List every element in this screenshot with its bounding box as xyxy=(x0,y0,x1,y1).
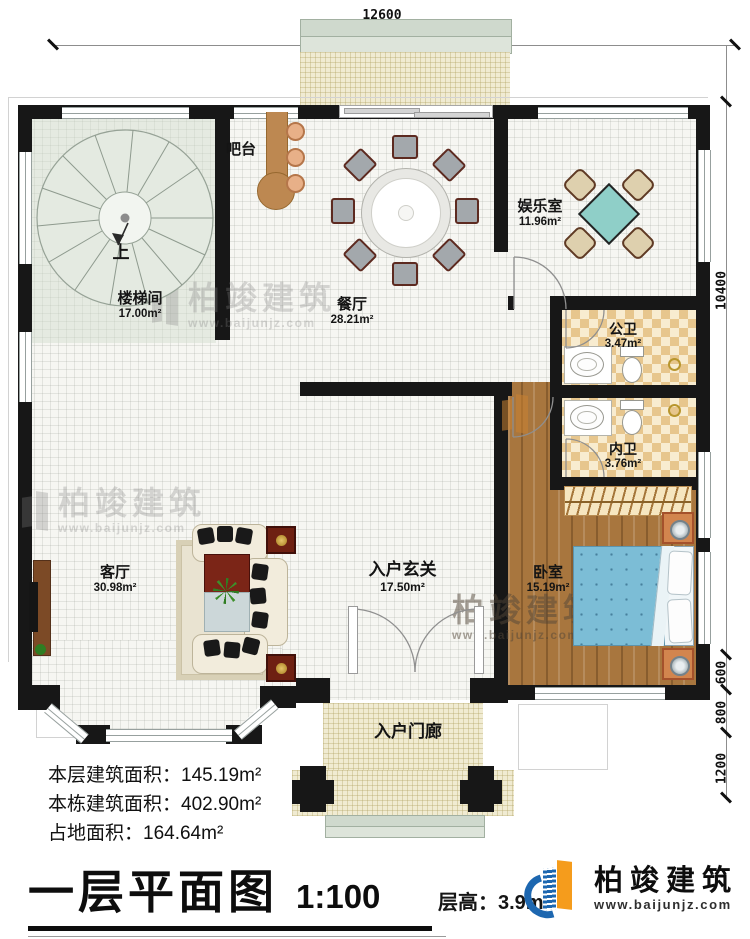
room-name: 客厅 xyxy=(100,564,130,582)
drawing-scale: 1:100 xyxy=(296,878,380,916)
stair-direction-label: 上 xyxy=(106,243,136,263)
area-stats: 本层建筑面积：145.19m² 本栋建筑面积：402.90m² 占地面积：164… xyxy=(48,761,261,848)
room-name: 吧台 xyxy=(226,141,256,159)
room-name: 餐厅 xyxy=(337,296,367,314)
title-underline-thin xyxy=(28,936,446,937)
room-area: 17.00m² xyxy=(119,308,162,322)
floor-plan: 12600 柏竣建筑 www.baijunjz.com 柏竣建筑 www.bai… xyxy=(0,0,750,939)
drawing-title-block: 一层平面图 1:100 xyxy=(28,856,448,937)
stat-floor-area: 本层建筑面积：145.19m² xyxy=(48,761,261,790)
room-name: 入户玄关 xyxy=(369,560,437,580)
room-area: 3.47m² xyxy=(605,338,641,352)
room-area: 17.50m² xyxy=(380,580,425,594)
brand-logo-icon xyxy=(524,858,586,920)
room-name: 入户门廊 xyxy=(374,722,442,742)
brand-logo: 柏竣建筑 www.baijunjz.com xyxy=(524,858,738,920)
stat-building-area: 本栋建筑面积：402.90m² xyxy=(48,790,261,819)
room-area: 11.96m² xyxy=(519,216,561,230)
room-name: 内卫 xyxy=(609,441,637,458)
room-area: 15.19m² xyxy=(527,582,570,596)
stat-land-area: 占地面积：164.64m² xyxy=(48,819,261,848)
room-label-stairwell: 楼梯间 17.00m² xyxy=(90,290,190,321)
room-area: 30.98m² xyxy=(94,582,137,596)
entrance-door-leaf xyxy=(474,606,484,674)
drawing-title: 一层平面图 xyxy=(28,856,278,922)
room-label-porch: 入户门廊 xyxy=(333,722,483,742)
room-name: 卧室 xyxy=(533,564,563,582)
room-name: 公卫 xyxy=(609,321,637,338)
brand-url: www.baijunjz.com xyxy=(594,897,738,912)
room-label-living: 客厅 30.98m² xyxy=(65,564,165,595)
room-label-foyer: 入户玄关 17.50m² xyxy=(340,560,465,594)
room-label-entertainment: 娱乐室 11.96m² xyxy=(490,198,590,229)
entrance-door-leaf xyxy=(348,606,358,674)
room-label-bedroom: 卧室 15.19m² xyxy=(498,564,598,595)
room-label-public-bath: 公卫 3.47m² xyxy=(583,321,663,351)
room-area: 28.21m² xyxy=(331,314,374,328)
room-name: 楼梯间 xyxy=(117,290,162,308)
title-underline xyxy=(28,926,432,931)
room-name: 娱乐室 xyxy=(517,198,562,216)
room-label-dining: 餐厅 28.21m² xyxy=(302,296,402,327)
room-label-inner-bath: 内卫 3.76m² xyxy=(583,441,663,471)
brand-name: 柏竣建筑 xyxy=(594,866,738,896)
room-area: 3.76m² xyxy=(605,458,641,472)
room-label-bar: 吧台 xyxy=(218,141,264,159)
